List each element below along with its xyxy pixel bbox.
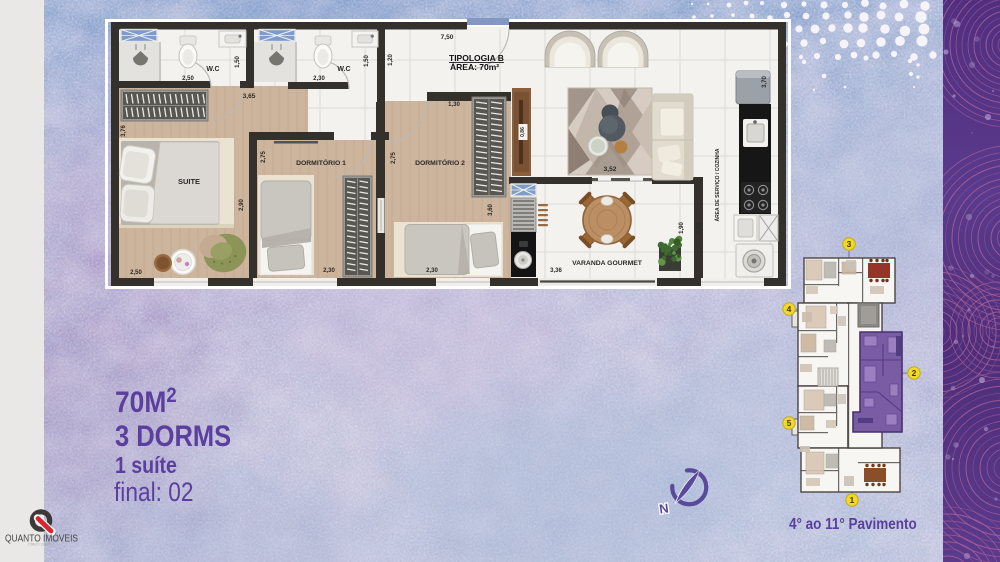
svg-text:2,75: 2,75 [391,152,397,164]
svg-text:3,76: 3,76 [121,125,127,137]
svg-text:1: 1 [850,495,855,505]
svg-text:2,30: 2,30 [313,76,325,82]
svg-text:7,50: 7,50 [441,34,454,41]
svg-text:ÁREA: 70m²: ÁREA: 70m² [450,62,499,72]
svg-text:4: 4 [787,304,792,314]
svg-text:ÁREA DE SERVIÇO / COZINHA: ÁREA DE SERVIÇO / COZINHA [714,148,721,221]
svg-text:2,50: 2,50 [182,76,194,82]
svg-text:2,50: 2,50 [130,270,142,276]
svg-text:2,30: 2,30 [426,268,438,274]
svg-text:1,20: 1,20 [388,54,394,66]
svg-text:2,75: 2,75 [261,151,267,163]
svg-text:2,08: 2,08 [696,222,702,234]
svg-text:1,30: 1,30 [448,102,460,108]
svg-text:1,50: 1,50 [364,55,370,67]
svg-text:W.C: W.C [206,66,219,73]
svg-text:3,36: 3,36 [550,268,562,274]
svg-text:5: 5 [787,418,792,428]
svg-text:1,90: 1,90 [679,222,685,234]
svg-text:N: N [658,500,669,516]
svg-text:DORMITÓRIO 2: DORMITÓRIO 2 [415,158,465,167]
svg-text:2,30: 2,30 [323,268,335,274]
svg-text:3,70: 3,70 [762,76,768,88]
svg-text:2: 2 [912,368,917,378]
svg-text:2,90: 2,90 [239,199,245,211]
svg-text:3,60: 3,60 [488,204,494,216]
svg-text:SUITE: SUITE [178,177,200,186]
svg-text:0,86: 0,86 [520,127,526,137]
svg-text:3,65: 3,65 [243,93,256,100]
svg-text:CRECI 23890-J: CRECI 23890-J [28,543,54,547]
svg-text:W.C: W.C [337,66,350,73]
svg-text:3: 3 [847,239,852,249]
svg-text:3,52: 3,52 [604,166,617,173]
svg-text:DORMITÓRIO 1: DORMITÓRIO 1 [296,158,346,167]
svg-text:VARANDA GOURMET: VARANDA GOURMET [572,260,643,267]
svg-text:1,50: 1,50 [235,56,241,68]
